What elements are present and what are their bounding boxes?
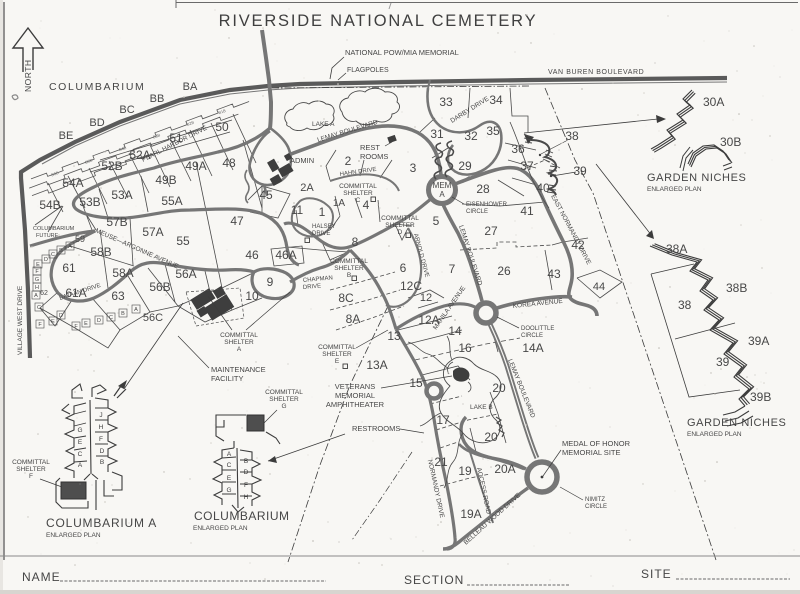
svg-text:43: 43 (547, 267, 561, 281)
svg-text:39A: 39A (748, 334, 769, 348)
svg-text:BD: BD (89, 117, 104, 129)
svg-text:1A: 1A (333, 198, 346, 209)
svg-text:B: B (121, 311, 125, 317)
svg-text:36: 36 (511, 142, 525, 156)
svg-text:SHELTER: SHELTER (343, 190, 373, 197)
svg-text:GARDEN NICHES: GARDEN NICHES (687, 417, 786, 429)
svg-text:56B: 56B (149, 280, 170, 294)
svg-text:1: 1 (319, 205, 326, 219)
svg-text:58A: 58A (112, 266, 133, 280)
svg-text:63: 63 (111, 289, 125, 303)
svg-text:F: F (99, 436, 103, 443)
svg-text:BA: BA (183, 81, 198, 93)
svg-text:MEMORIAL SITE: MEMORIAL SITE (562, 448, 620, 457)
svg-text:D: D (244, 469, 249, 476)
svg-text:VAN BUREN BOULEVARD: VAN BUREN BOULEVARD (548, 69, 644, 76)
svg-text:54A: 54A (62, 176, 83, 190)
svg-text:E: E (84, 321, 88, 327)
svg-text:SHELTER: SHELTER (224, 339, 254, 346)
svg-text:VETERANS: VETERANS (335, 382, 375, 391)
svg-text:27: 27 (484, 224, 498, 238)
svg-text:20: 20 (492, 381, 506, 395)
svg-text:50: 50 (215, 120, 229, 134)
svg-text:17: 17 (436, 413, 450, 427)
svg-text:A: A (34, 293, 38, 299)
svg-text:COMMITTAL: COMMITTAL (339, 183, 377, 190)
svg-text:29: 29 (458, 159, 472, 173)
svg-text:31: 31 (430, 127, 444, 141)
svg-text:12: 12 (420, 292, 432, 304)
svg-text:SECTION: SECTION (404, 573, 464, 587)
svg-text:39B: 39B (750, 390, 771, 404)
svg-text:F: F (29, 473, 33, 480)
svg-text:46A: 46A (275, 248, 296, 262)
svg-text:GARDEN NICHES: GARDEN NICHES (647, 172, 746, 184)
svg-text:D: D (44, 257, 48, 263)
svg-text:8: 8 (352, 235, 359, 249)
svg-text:B: B (100, 459, 104, 466)
svg-text:NAME: NAME (22, 570, 61, 584)
svg-text:26: 26 (497, 264, 511, 278)
svg-text:2: 2 (345, 154, 352, 168)
svg-text:MAINTENANCE: MAINTENANCE (211, 365, 266, 374)
svg-text:20A: 20A (494, 462, 515, 476)
svg-text:34: 34 (489, 93, 503, 107)
svg-text:38A: 38A (666, 242, 687, 256)
svg-text:14: 14 (448, 324, 462, 338)
svg-text:5: 5 (433, 214, 440, 228)
svg-text:J: J (99, 412, 102, 419)
svg-text:EISENHOWER: EISENHOWER (466, 202, 508, 208)
svg-text:COMMITTAL: COMMITTAL (330, 258, 368, 265)
svg-text:39: 39 (716, 355, 730, 369)
svg-text:30A: 30A (703, 95, 724, 109)
svg-text:MEDAL OF HONOR: MEDAL OF HONOR (562, 439, 631, 448)
svg-text:BC: BC (119, 104, 134, 116)
svg-text:8C: 8C (338, 291, 354, 305)
svg-text:46: 46 (245, 248, 259, 262)
svg-text:ENLARGED PLAN: ENLARGED PLAN (647, 186, 702, 193)
svg-text:G: G (281, 403, 286, 410)
svg-text:53A: 53A (111, 188, 132, 202)
svg-text:55A: 55A (161, 194, 182, 208)
svg-text:LAKE B: LAKE B (470, 404, 493, 411)
svg-text:NIMITZ: NIMITZ (585, 497, 605, 503)
svg-text:ENLARGED PLAN: ENLARGED PLAN (46, 532, 101, 539)
svg-text:COLUMBARIUM: COLUMBARIUM (49, 81, 145, 93)
svg-text:SHELTER: SHELTER (322, 351, 352, 358)
svg-text:ENLARGED PLAN: ENLARGED PLAN (687, 431, 742, 438)
svg-text:A: A (227, 451, 232, 458)
svg-text:21: 21 (434, 455, 448, 469)
svg-text:A: A (78, 462, 83, 469)
svg-text:RIVERSIDE NATIONAL CEMETERY: RIVERSIDE NATIONAL CEMETERY (219, 12, 538, 30)
svg-text:COMMITTAL: COMMITTAL (381, 215, 419, 222)
svg-text:35: 35 (486, 124, 500, 138)
svg-text:COLUMBARIUM A: COLUMBARIUM A (46, 516, 157, 530)
svg-text:DOOLITTLE: DOOLITTLE (521, 326, 554, 332)
svg-text:49B: 49B (155, 173, 176, 187)
svg-text:B: B (244, 458, 248, 465)
svg-text:38: 38 (565, 129, 579, 143)
svg-text:BE: BE (59, 130, 74, 142)
svg-text:E: E (227, 475, 232, 482)
svg-text:12C: 12C (400, 279, 422, 293)
svg-text:C: C (356, 197, 361, 204)
svg-text:B: B (59, 248, 63, 254)
svg-text:7: 7 (449, 262, 456, 276)
svg-text:COMMITTAL: COMMITTAL (265, 389, 303, 396)
svg-text:30B: 30B (720, 135, 741, 149)
svg-text:FUTURE: FUTURE (36, 233, 59, 239)
svg-text:SHELTER: SHELTER (269, 396, 299, 403)
svg-text:G: G (226, 487, 231, 494)
svg-text:9: 9 (267, 275, 274, 289)
svg-text:REST: REST (360, 143, 380, 152)
svg-text:C: C (227, 462, 232, 469)
svg-text:32: 32 (464, 129, 478, 143)
svg-text:16: 16 (458, 341, 472, 355)
svg-text:58B: 58B (90, 245, 111, 259)
svg-text:19: 19 (458, 464, 472, 478)
svg-text:MEMORIAL: MEMORIAL (335, 391, 375, 400)
svg-text:C: C (109, 315, 113, 321)
svg-text:14A: 14A (522, 341, 543, 355)
svg-text:SHELTER: SHELTER (385, 222, 415, 229)
svg-text:ENLARGED PLAN: ENLARGED PLAN (193, 525, 248, 532)
svg-text:53B: 53B (79, 195, 100, 209)
svg-text:B: B (347, 272, 351, 279)
svg-text:10: 10 (245, 289, 259, 303)
svg-text:COLUMBARIUM: COLUMBARIUM (33, 226, 75, 232)
svg-text:RESTROOMS: RESTROOMS (352, 424, 400, 433)
svg-text:52B: 52B (101, 159, 122, 173)
svg-text:E: E (51, 319, 55, 325)
svg-text:CIRCLE: CIRCLE (466, 209, 488, 215)
svg-text:57A: 57A (142, 225, 163, 239)
svg-text:13A: 13A (366, 358, 387, 372)
svg-text:SITE: SITE (641, 567, 672, 581)
svg-text:HALSEY: HALSEY (312, 224, 336, 230)
svg-text:48: 48 (222, 156, 236, 170)
svg-text:COMMITTAL: COMMITTAL (220, 332, 258, 339)
svg-text:FACILITY: FACILITY (211, 374, 244, 383)
svg-text:MEM: MEM (433, 181, 452, 190)
svg-text:FLAGPOLES: FLAGPOLES (347, 67, 389, 74)
svg-text:A: A (68, 244, 72, 250)
svg-text:6: 6 (400, 261, 407, 275)
svg-text:G: G (35, 277, 39, 283)
svg-text:C: C (78, 451, 83, 458)
svg-text:8A: 8A (346, 312, 361, 326)
svg-text:SHELTER: SHELTER (334, 265, 364, 272)
svg-text:G: G (77, 427, 82, 434)
svg-text:13: 13 (387, 329, 401, 343)
svg-text:57B: 57B (106, 215, 127, 229)
svg-text:C: C (51, 252, 55, 258)
svg-text:VILLAGE WEST DRIVE: VILLAGE WEST DRIVE (17, 285, 24, 355)
svg-text:A: A (134, 307, 138, 313)
svg-text:A: A (237, 346, 242, 353)
svg-text:E: E (335, 358, 340, 365)
svg-text:BB: BB (150, 93, 165, 105)
svg-text:LAKE A: LAKE A (312, 121, 335, 128)
svg-text:CIRCLE: CIRCLE (585, 504, 607, 510)
svg-text:F: F (244, 482, 248, 489)
svg-text:49A: 49A (185, 159, 206, 173)
svg-text:56C: 56C (143, 312, 163, 324)
svg-text:C: C (37, 305, 41, 311)
svg-text:COMMITTAL: COMMITTAL (318, 344, 356, 351)
svg-text:33: 33 (439, 95, 453, 109)
svg-text:CIRCLE: CIRCLE (521, 333, 543, 339)
svg-text:54B: 54B (39, 198, 60, 212)
svg-text:56A: 56A (175, 267, 196, 281)
svg-text:20: 20 (484, 430, 498, 444)
svg-text:COMMITTAL: COMMITTAL (12, 459, 50, 466)
svg-text:D: D (97, 318, 101, 324)
svg-text:A: A (439, 190, 445, 199)
svg-text:28: 28 (476, 182, 490, 196)
svg-text:61: 61 (62, 261, 76, 275)
svg-text:DRIVE: DRIVE (312, 231, 330, 237)
svg-text:37: 37 (520, 159, 534, 173)
svg-text:NORTH: NORTH (23, 59, 33, 92)
svg-text:D: D (100, 448, 105, 455)
svg-text:59: 59 (75, 234, 85, 244)
svg-text:D: D (59, 313, 63, 319)
svg-text:40: 40 (536, 181, 550, 195)
svg-text:41: 41 (520, 204, 534, 218)
svg-text:D: D (398, 229, 403, 236)
svg-text:38: 38 (678, 298, 692, 312)
svg-text:COLUMBARIUM: COLUMBARIUM (194, 509, 290, 523)
svg-text:39: 39 (573, 164, 587, 178)
svg-text:NATIONAL POW/MIA MEMORIAL: NATIONAL POW/MIA MEMORIAL (345, 48, 459, 57)
svg-text:19A: 19A (460, 507, 481, 521)
svg-text:38B: 38B (726, 281, 747, 295)
svg-text:2A: 2A (300, 182, 314, 194)
svg-text:E: E (78, 439, 83, 446)
svg-text:47: 47 (230, 214, 244, 228)
svg-text:SHELTER: SHELTER (16, 466, 46, 473)
svg-text:AMPHITHEATER: AMPHITHEATER (326, 400, 385, 409)
svg-text:H: H (35, 285, 39, 291)
svg-text:55: 55 (176, 234, 190, 248)
svg-text:11: 11 (291, 203, 304, 217)
svg-text:45: 45 (259, 188, 273, 202)
svg-text:H: H (99, 424, 104, 431)
svg-text:ADMIN: ADMIN (290, 156, 314, 165)
svg-text:44: 44 (593, 281, 605, 293)
svg-text:ROOMS: ROOMS (360, 152, 388, 161)
svg-text:3: 3 (410, 161, 417, 175)
